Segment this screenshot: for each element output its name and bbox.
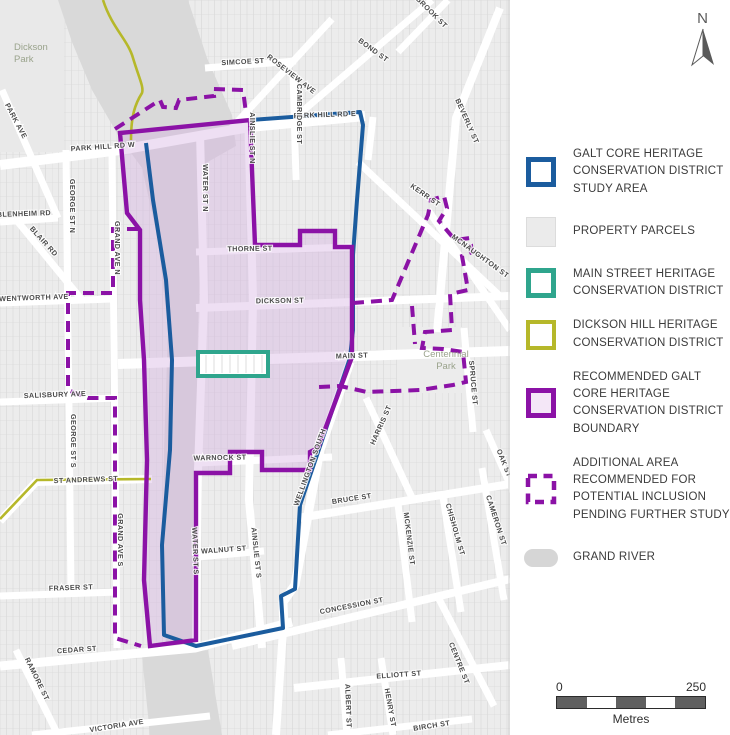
dickson-park-label: Park — [14, 54, 34, 65]
map-svg: DicksonParkCentennialParkPARK AVEPARK HI… — [0, 0, 510, 735]
main-street-hcd-swatch-icon — [524, 266, 558, 300]
legend-item-study-area: GALT CORE HERITAGE CONSERVATION DISTRICT… — [524, 146, 730, 198]
street-label: CAMBRIDGE ST — [295, 84, 304, 145]
study-area-swatch-icon — [524, 155, 558, 189]
street-label: WARNOCK ST — [193, 453, 246, 463]
dickson-park-area — [0, 0, 64, 152]
legend-item-grand-river: GRAND RIVER — [524, 541, 730, 575]
scale-unit-label: Metres — [556, 712, 706, 726]
centennial-park-label: Centennial — [423, 349, 468, 360]
street-label: ALBERT ST — [343, 684, 354, 728]
legend-label: PROPERTY PARCELS — [573, 223, 730, 240]
legend-label: DICKSON HILL HERITAGE CONSERVATION DISTR… — [573, 317, 730, 352]
north-label: N — [688, 10, 718, 27]
street-label: GEORGE ST N — [68, 179, 77, 233]
street-label: GEORGE ST S — [69, 414, 78, 468]
street-label: THORNE ST — [227, 244, 272, 254]
street-label: DICKSON ST — [256, 296, 305, 306]
street-label: MAIN ST — [336, 350, 369, 360]
street-label: WATER ST N — [201, 164, 210, 212]
street-label: AINSLIE ST N — [248, 112, 257, 164]
scale-bar: 0 250 Metres — [556, 680, 706, 726]
legend-items: GALT CORE HERITAGE CONSERVATION DISTRICT… — [524, 146, 730, 575]
legend-label: MAIN STREET HERITAGE CONSERVATION DISTRI… — [573, 266, 730, 301]
legend-label: GRAND RIVER — [573, 549, 730, 566]
legend-label: ADDITIONAL AREA RECOMMENDED FOR POTENTIA… — [573, 455, 730, 524]
main-street-hcd-boundary — [198, 352, 268, 376]
recommended-boundary-swatch-icon — [524, 386, 558, 420]
legend-item-main-street-hcd: MAIN STREET HERITAGE CONSERVATION DISTRI… — [524, 266, 730, 301]
property-parcels-swatch-icon — [524, 215, 558, 249]
legend-item-property-parcels: PROPERTY PARCELS — [524, 215, 730, 249]
grand-river-swatch-icon — [524, 541, 558, 575]
legend-panel: N GALT CORE HERITAGE CONSERVATION DISTRI… — [510, 0, 730, 735]
heritage-district-map-page: DicksonParkCentennialParkPARK AVEPARK HI… — [0, 0, 730, 735]
street-label: WATER ST S — [190, 527, 201, 575]
street-label: FRASER ST — [49, 582, 94, 593]
street-label: GRAND AVE N — [113, 221, 122, 275]
legend-item-recommended-boundary: RECOMMENDED GALT CORE HERITAGE CONSERVAT… — [524, 369, 730, 438]
additional-area-swatch-icon — [524, 472, 558, 506]
legend-label: GALT CORE HERITAGE CONSERVATION DISTRICT… — [573, 146, 730, 198]
centennial-park-label: Park — [436, 361, 456, 372]
north-arrow-icon — [688, 27, 718, 69]
legend-label: RECOMMENDED GALT CORE HERITAGE CONSERVAT… — [573, 369, 730, 438]
street-label: GRAND AVE S — [116, 513, 125, 567]
north-arrow: N — [688, 10, 718, 74]
street-label: BLENHEIM RD — [0, 208, 51, 219]
map-canvas: DicksonParkCentennialParkPARK AVEPARK HI… — [0, 0, 510, 735]
centennial-park-area — [397, 327, 468, 393]
scale-start-label: 0 — [556, 680, 563, 694]
scale-bar-graphic — [556, 696, 706, 709]
legend-item-additional-area: ADDITIONAL AREA RECOMMENDED FOR POTENTIA… — [524, 455, 730, 524]
legend-item-dickson-hill-hcd: DICKSON HILL HERITAGE CONSERVATION DISTR… — [524, 317, 730, 352]
scale-end-label: 250 — [686, 680, 706, 694]
dickson-hill-hcd-swatch-icon — [524, 318, 558, 352]
dickson-park-label: Dickson — [14, 42, 48, 53]
